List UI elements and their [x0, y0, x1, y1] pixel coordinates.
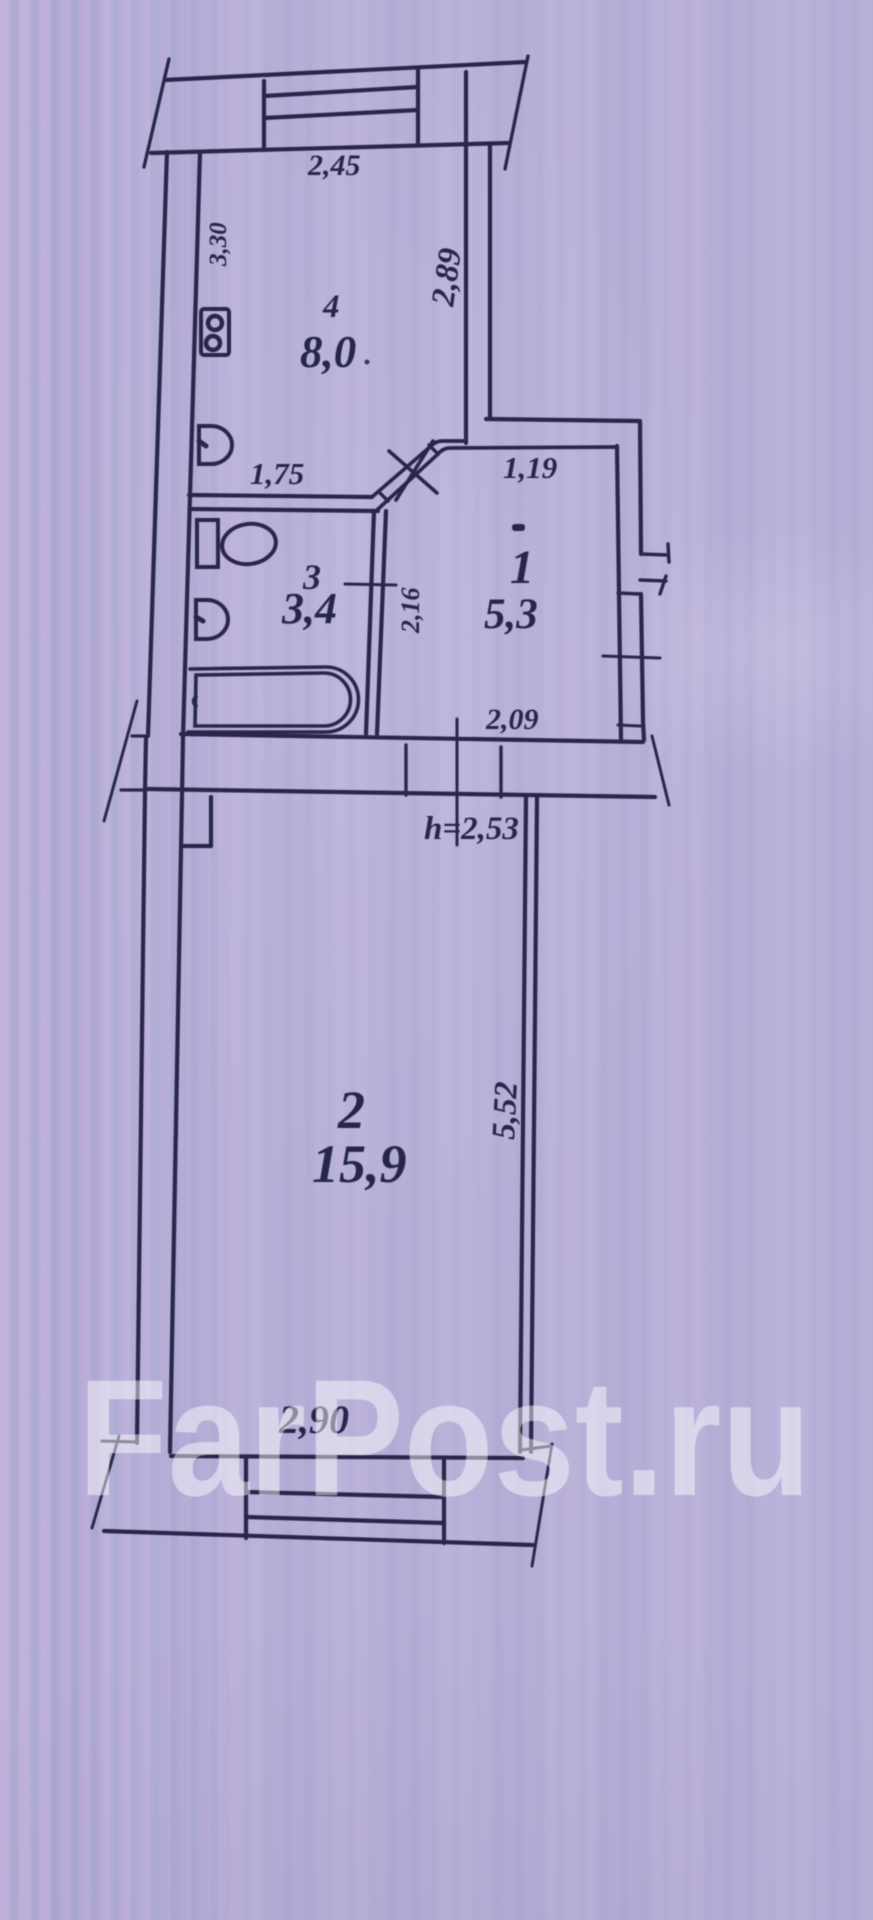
svg-text:1: 1	[510, 541, 534, 594]
svg-text:2,89: 2,89	[425, 246, 469, 309]
svg-text:4: 4	[322, 289, 340, 325]
svg-text:3,4: 3,4	[281, 584, 337, 633]
svg-text:2: 2	[337, 1080, 365, 1140]
svg-text:1,19: 1,19	[503, 450, 557, 485]
svg-text:2,16: 2,16	[396, 588, 425, 635]
svg-text:FarPost.ru: FarPost.ru	[78, 1346, 811, 1531]
svg-text:8,0: 8,0	[300, 327, 356, 377]
svg-text:3,30: 3,30	[205, 222, 232, 267]
svg-text:15,9: 15,9	[312, 1134, 407, 1194]
svg-text:1,75: 1,75	[250, 456, 304, 491]
svg-text:2,45: 2,45	[307, 149, 361, 182]
svg-text:5,52: 5,52	[486, 1081, 525, 1141]
svg-text:5,3: 5,3	[484, 591, 538, 638]
svg-text:h=2,53: h=2,53	[424, 811, 519, 847]
svg-text:2,09: 2,09	[485, 703, 539, 736]
